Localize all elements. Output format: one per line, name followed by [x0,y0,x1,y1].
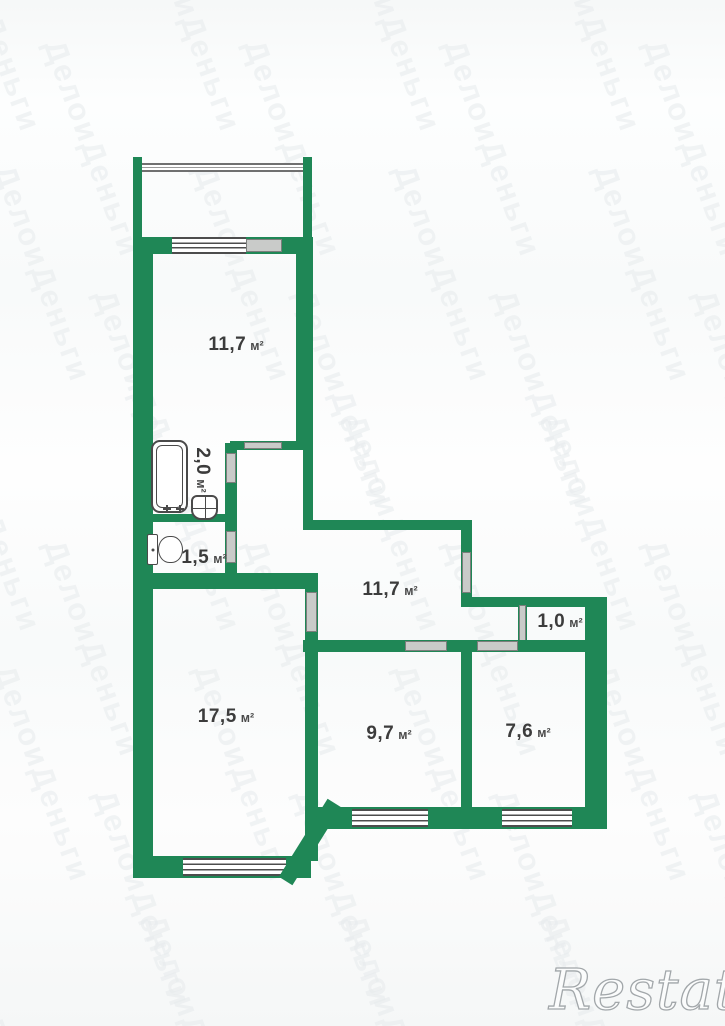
label-room-large: 17,5 м² [198,706,254,728]
bathroom-wc-divider [143,514,237,522]
bathroom-door-opening [226,453,236,483]
wc-bottom-wall [133,573,318,589]
label-room-right: 7,6 м² [505,721,550,743]
right-exterior-wall [585,597,607,829]
sink [191,495,218,520]
room-right-door-opening [477,641,518,651]
toilet-tank [147,534,158,565]
room-large-door-opening [306,592,317,632]
lower-rooms-top-wall [303,640,607,652]
toilet-bowl [158,536,183,563]
window [172,237,246,254]
room-divider-wall [461,652,472,808]
floorplan-page: { "watermark": { "text": "ДелоиДеньги" }… [0,0,725,1026]
window [183,858,286,876]
window [502,809,572,827]
tap-icon [179,505,181,513]
tap-icon [166,505,168,513]
top-room-right-wall [296,237,313,448]
room-mid-door-opening [405,641,447,651]
entry-door-opening [462,552,471,593]
toilet-button [151,548,154,551]
label-storage: 1,0 м² [537,611,582,633]
bathtub-inner [156,445,183,508]
label-room-mid: 9,7 м² [366,723,411,745]
hallway-left-wall [303,443,313,530]
label-hallway: 11,7 м² [362,579,417,601]
storage-door-opening [519,605,526,641]
sink-line [193,508,216,509]
label-bathroom: 2,0 м² [191,447,213,492]
balcony-door-opening [246,239,282,252]
floor-plan: 11,7 м² 2,0 м² 1,5 м² 11,7 м² 1,0 м² 17,… [0,0,725,1026]
restate-logo: Restate [549,958,725,1023]
window [352,809,428,827]
label-wc: 1,5 м² [181,547,226,569]
bathtub [151,440,188,513]
door-opening [244,442,282,449]
label-room-top: 11,7 м² [208,334,263,356]
wc-door-opening [226,531,236,563]
balcony-glazing [142,163,303,172]
hallway-top-wall [303,520,472,530]
